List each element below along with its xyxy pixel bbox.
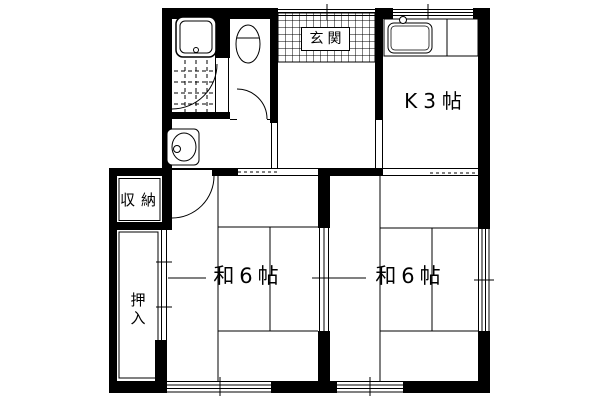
wall-bottom-right [403,381,490,393]
window-bottom-right [337,377,403,396]
fusuma-between-rooms [320,228,329,331]
wall-right-upper [478,8,490,229]
wall-bath-toilet-divider [215,8,230,58]
kitchen-sink [388,23,432,53]
wall-band-solid-a [212,168,238,176]
wall-toilet-right [270,8,278,123]
floorplan: 玄関 K3帖 収納 押入 和6帖 和6帖 [0,0,600,400]
room-label-tatami-left: 和6帖 [198,262,294,290]
room-label-kitchen: K3帖 [387,87,479,114]
room-label-tatami-right: 和6帖 [360,262,456,290]
wall-bath-bottom [162,112,230,119]
wall-mid-upper [318,168,330,228]
wall-bottom-left [109,381,167,393]
bathtub [176,17,216,57]
room-label-storage: 収納 [112,189,164,211]
wall-bottom-mid [271,381,337,393]
tatami-room-door-arc [172,176,214,218]
faucet [400,17,407,24]
room-label-entrance: 玄関 [301,27,350,51]
wall-storage-closet-divider [109,222,172,230]
toilet-door-arc [237,89,267,119]
room-label-closet: 押入 [121,281,153,339]
fixtures [119,13,478,378]
wall-genkan-right [375,8,383,120]
toilet [236,25,260,63]
window-right-wall [474,229,494,331]
bathroom-tile-floor [174,60,215,112]
window-bottom-left [167,377,271,396]
floorplan-canvas [0,0,600,400]
